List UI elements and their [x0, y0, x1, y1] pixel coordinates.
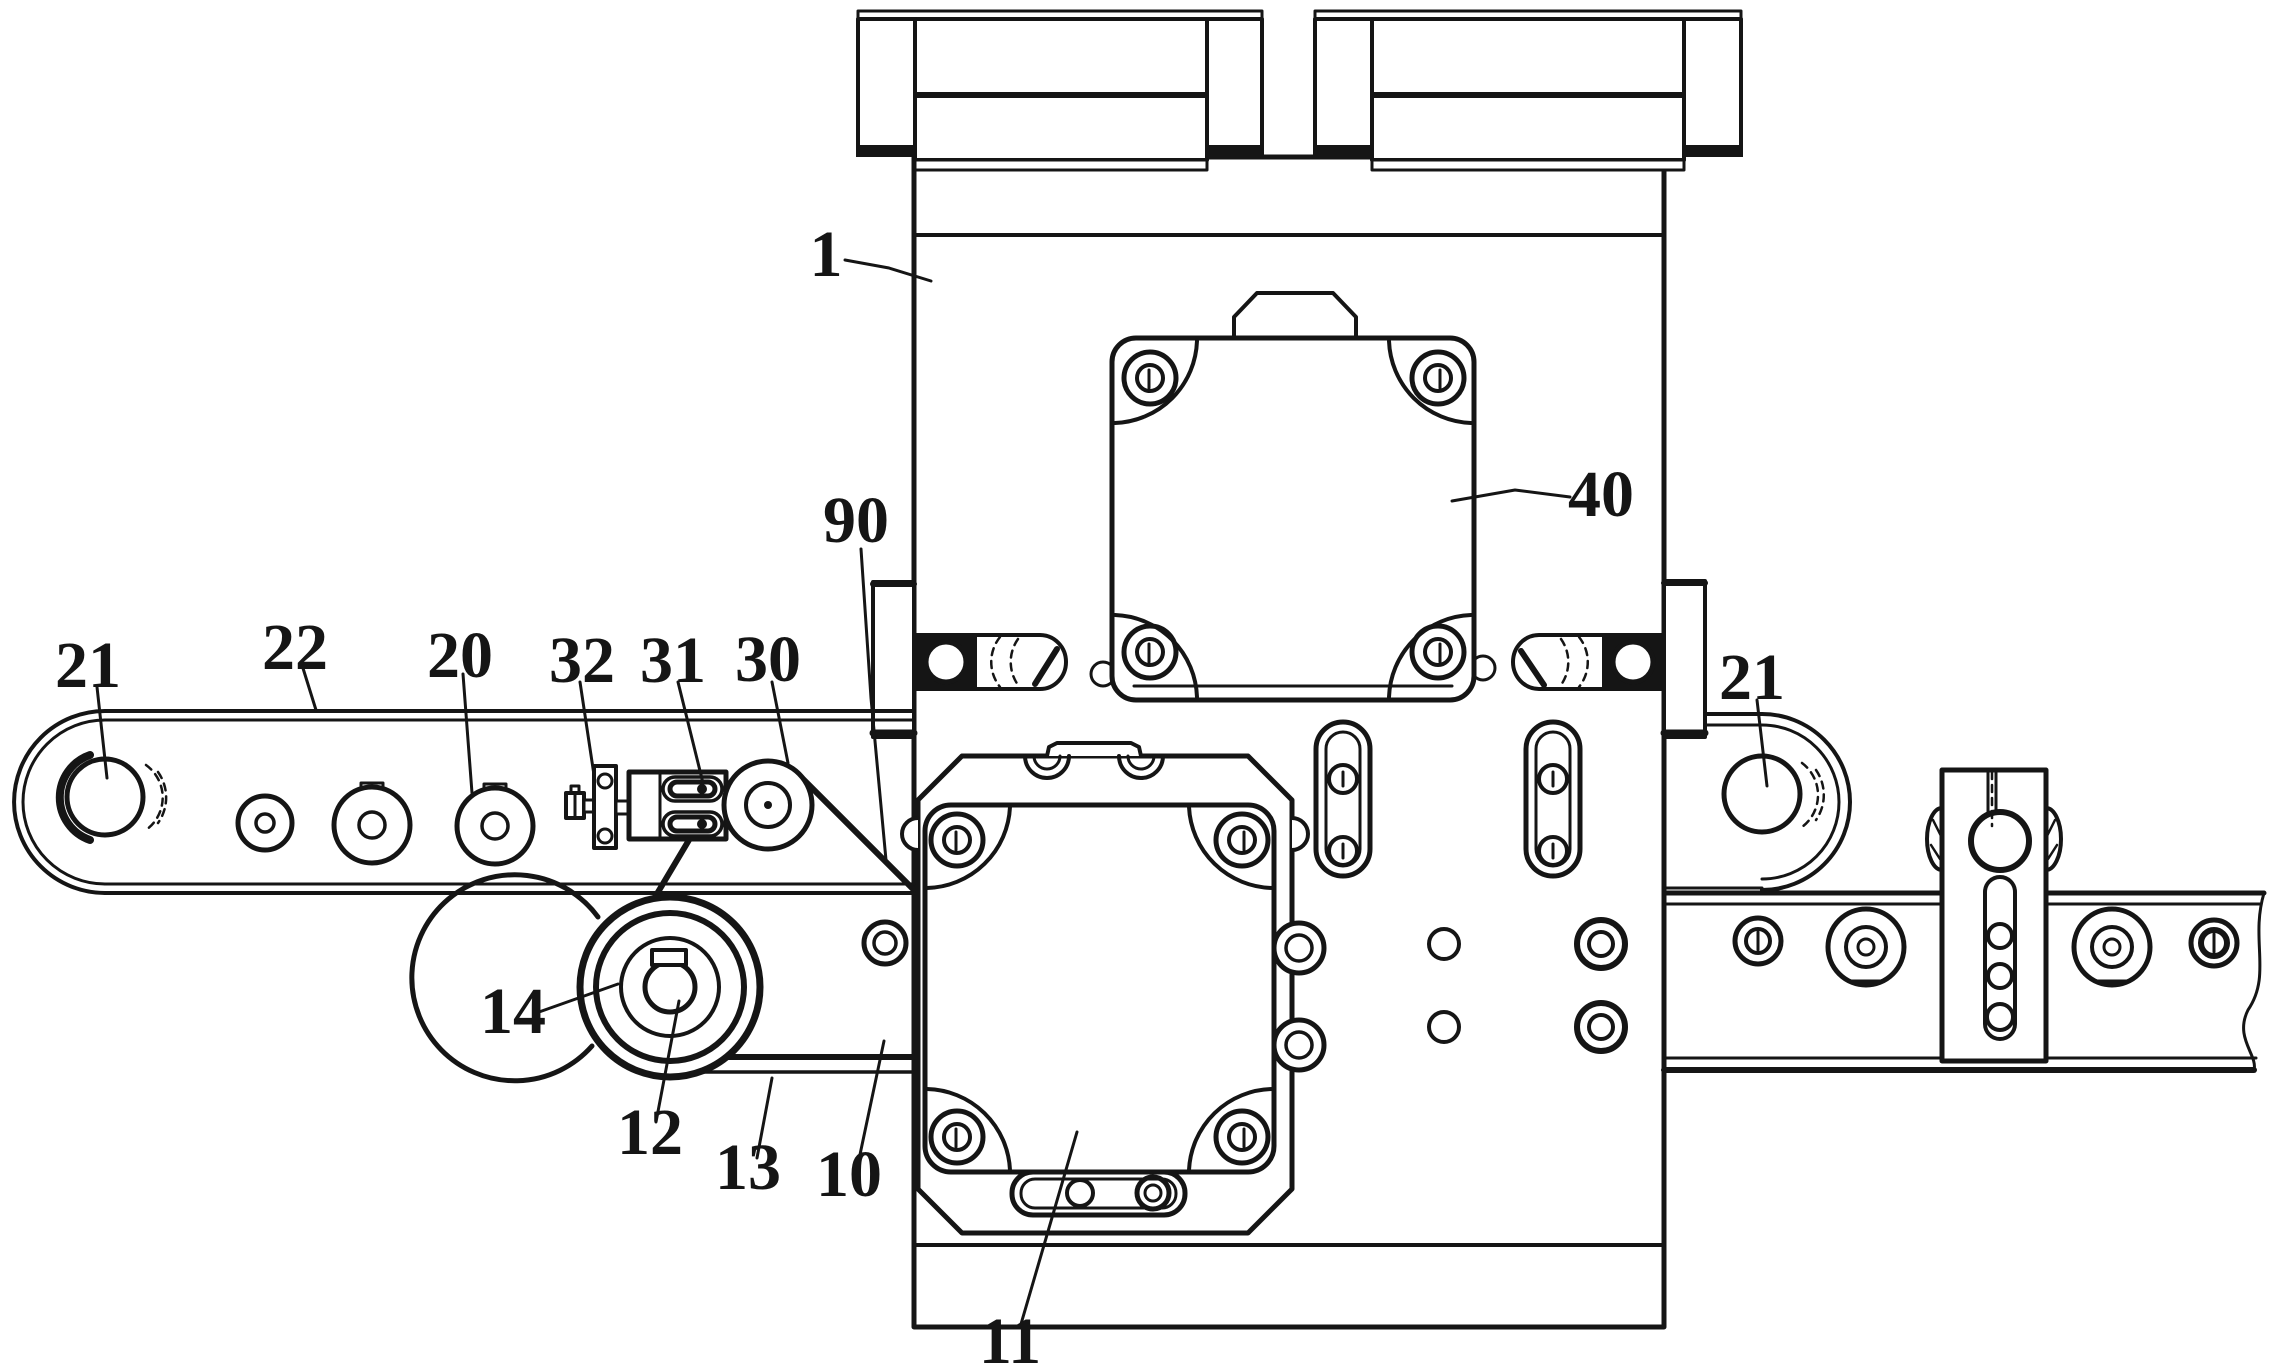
carriage-plate-10 [902, 743, 1324, 1233]
arm-boss [864, 922, 906, 964]
motor-top-tab [1234, 293, 1356, 340]
part-label-30: 30 [735, 623, 801, 696]
top-bracket-right [1313, 11, 1743, 170]
part-label-40: 40 [1568, 458, 1634, 531]
side-plate-right [1664, 581, 1705, 737]
plate-11-outline [925, 805, 1274, 1172]
plate-body [1664, 581, 1705, 737]
clamp-pin-left [915, 633, 1066, 691]
part-label-1: 1 [810, 218, 843, 291]
part-label-10: 10 [816, 1138, 882, 1211]
top-bracket-left [856, 11, 1264, 170]
drawing-canvas: 1 90 21 22 20 32 31 30 40 21 14 12 13 10… [0, 0, 2278, 1370]
bracket-foot-right [1205, 147, 1264, 157]
part-label-31: 31 [640, 624, 706, 697]
part-label-22: 22 [262, 611, 328, 684]
shaft-clamp-block [1927, 770, 2061, 1061]
clamp-pin-right [1513, 633, 1664, 691]
pin-ball [926, 642, 966, 682]
pin-dot [697, 784, 707, 794]
bracket-inner-plate [915, 19, 1207, 160]
bracket-flange [1372, 160, 1684, 170]
motor-40 [1091, 293, 1495, 700]
bracket-flange [915, 160, 1207, 170]
patent-figure: 1 90 21 22 20 32 31 30 40 21 14 12 13 10… [0, 0, 2278, 1370]
part-label-12: 12 [617, 1096, 683, 1169]
motor-body [1112, 338, 1474, 700]
part-label-13: 13 [715, 1131, 781, 1204]
part-label-20: 20 [427, 619, 493, 692]
pin-ball [1613, 642, 1653, 682]
bracket-foot-left [1313, 147, 1374, 157]
tensioner-assembly [566, 761, 812, 849]
bracket-side-plate-right [1207, 19, 1262, 147]
part-label-21-right: 21 [1719, 641, 1785, 714]
side-boss-lower [1274, 1020, 1324, 1070]
keyway-notch [652, 950, 686, 965]
pin-dot [697, 819, 707, 829]
plate-body [873, 582, 914, 737]
bracket-side-plate-left [1315, 19, 1372, 147]
bracket-inner-plate [1372, 19, 1684, 160]
part-label-32: 32 [549, 624, 615, 697]
side-bump-right [1292, 818, 1308, 850]
bracket-foot-right [1682, 147, 1743, 157]
bracket-side-plate-right [1684, 19, 1741, 147]
side-bump-left [902, 818, 918, 850]
part-label-14: 14 [480, 975, 546, 1048]
side-plate-left [873, 582, 914, 737]
bracket-side-plate-left [858, 19, 915, 147]
carriage-top-tab [1047, 743, 1141, 756]
part-label-21-left: 21 [55, 629, 121, 702]
pulley-30-center [764, 801, 772, 809]
side-boss-upper [1274, 923, 1324, 973]
bracket-foot-left [856, 147, 917, 157]
part-label-90: 90 [823, 484, 889, 557]
part-label-11: 11 [979, 1305, 1041, 1370]
roller-21-right [1724, 756, 1800, 832]
